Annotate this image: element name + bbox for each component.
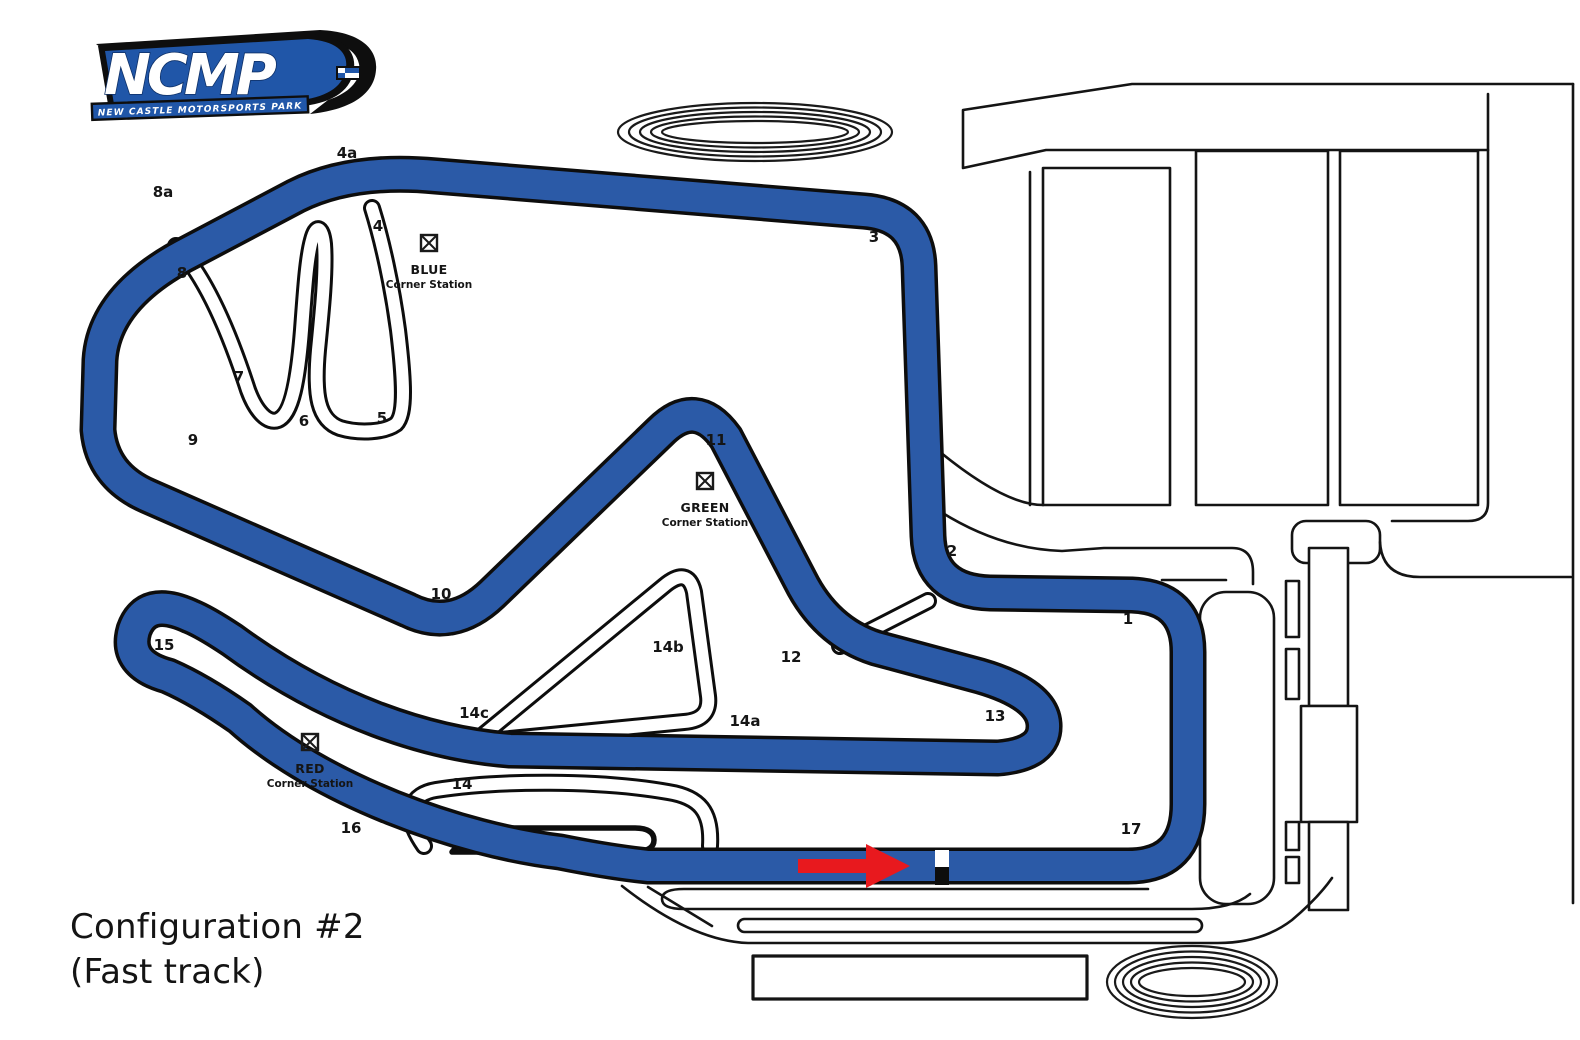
grandstand-oval-bottom bbox=[1107, 946, 1277, 1018]
turn-label-4a: 4a bbox=[337, 144, 358, 162]
configuration-title: Configuration #2 (Fast track) bbox=[70, 905, 365, 995]
configuration-title-line1: Configuration #2 bbox=[70, 905, 365, 950]
turn-label-5: 5 bbox=[377, 409, 387, 427]
infield-road-ring bbox=[1200, 592, 1274, 904]
turn-label-14: 14 bbox=[452, 775, 473, 793]
service-rect bbox=[1286, 649, 1299, 699]
station-name: GREEN bbox=[681, 500, 730, 515]
turn-label-7: 7 bbox=[234, 368, 244, 386]
track-map: 4a8a43876591110211514b1214c14a13141617 B… bbox=[0, 0, 1580, 1040]
turn-label-14a: 14a bbox=[730, 712, 761, 730]
turn-label-14b: 14b bbox=[652, 638, 684, 656]
turn-label-2: 2 bbox=[947, 542, 957, 560]
station-sub-label: Corner Station bbox=[662, 517, 749, 529]
race-track-configuration-2 bbox=[98, 174, 1188, 866]
tower-building bbox=[1309, 548, 1348, 706]
turn-label-3: 3 bbox=[869, 228, 879, 246]
start-finish-marker bbox=[935, 850, 949, 885]
turn-label-13: 13 bbox=[985, 707, 1006, 725]
pit-island-slot bbox=[738, 919, 1202, 932]
ncmp-logo: NCMP NEW CASTLE MOTORSPORTS PARK bbox=[92, 30, 376, 120]
turn-label-8: 8 bbox=[177, 264, 187, 282]
configuration-title-line2: (Fast track) bbox=[70, 950, 365, 995]
service-rect bbox=[1286, 822, 1299, 850]
logo-checker-icon bbox=[336, 66, 362, 80]
tower-exit-road bbox=[1380, 542, 1571, 577]
turn-label-17: 17 bbox=[1121, 820, 1142, 838]
service-rect bbox=[1286, 581, 1299, 637]
turn-label-10: 10 bbox=[431, 585, 452, 603]
turn-label-6: 6 bbox=[299, 412, 309, 430]
turn-label-8a: 8a bbox=[153, 183, 174, 201]
start-finish-black-half bbox=[935, 867, 949, 885]
station-sub-label: Corner Station bbox=[386, 279, 473, 291]
station-name: BLUE bbox=[411, 262, 448, 277]
track-surface-blue bbox=[98, 174, 1188, 866]
pit-entry-edge bbox=[648, 887, 712, 926]
paddock-road-edge bbox=[941, 512, 1253, 584]
track-map-page: 4a8a43876591110211514b1214c14a13141617 B… bbox=[0, 0, 1580, 1040]
turn-label-14c: 14c bbox=[459, 704, 489, 722]
station-name: RED bbox=[295, 761, 324, 776]
turn-label-4: 4 bbox=[373, 217, 383, 235]
station-sub-label: Corner Station bbox=[267, 778, 354, 790]
garage-block bbox=[1340, 151, 1478, 505]
triangle-road-14b bbox=[482, 577, 708, 740]
turn-label-1: 1 bbox=[1123, 610, 1133, 628]
turn-label-15: 15 bbox=[154, 636, 175, 654]
pit-lane-inner-edge bbox=[662, 889, 1250, 909]
garage-block bbox=[1196, 151, 1328, 505]
turn-label-9: 9 bbox=[188, 431, 198, 449]
building-rect bbox=[753, 956, 1087, 999]
turn-label-11: 11 bbox=[706, 431, 727, 449]
start-finish-white-half bbox=[935, 850, 949, 867]
turn-label-16: 16 bbox=[341, 819, 362, 837]
service-rect bbox=[1286, 857, 1299, 883]
grandstand-oval-top bbox=[618, 103, 892, 161]
corner-station-blue: BLUECorner Station bbox=[386, 235, 473, 291]
paddock-road-edge bbox=[940, 452, 1043, 505]
tower-building-wide bbox=[1301, 706, 1357, 822]
turn-label-12: 12 bbox=[781, 648, 802, 666]
garage-block bbox=[1043, 168, 1170, 505]
